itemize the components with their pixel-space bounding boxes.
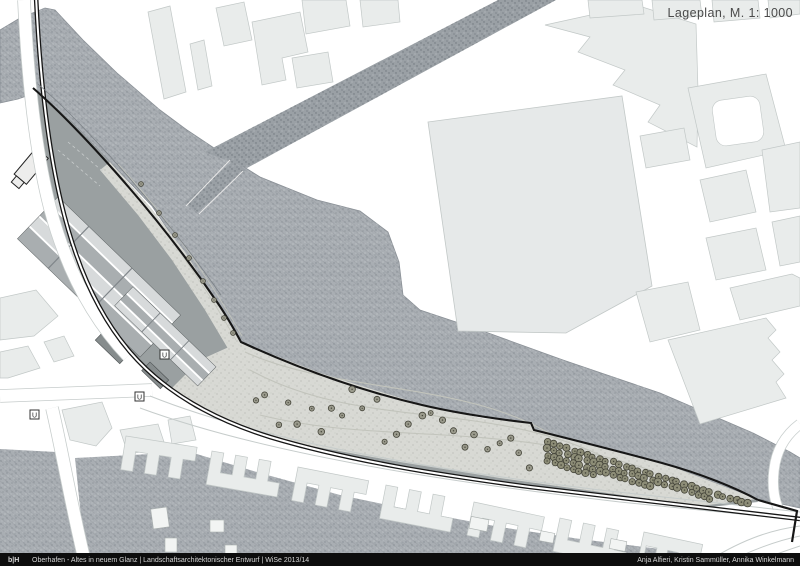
ubahn-marker: U [135, 392, 144, 401]
svg-text:U: U [162, 352, 167, 359]
footer-logo: b|H [8, 557, 19, 564]
svg-text:U: U [137, 394, 142, 401]
footer-authors: Anja Alfieri, Kristin Sammüller, Annika … [637, 557, 794, 564]
svg-text:U: U [32, 412, 37, 419]
site-plan-page: U U U Lageplan, M. 1: 1000 b|H Oberhafen… [0, 0, 800, 566]
site-plan-map: U U U Lageplan, M. 1: 1000 b|H Oberhafen… [0, 0, 800, 566]
page-title: Lageplan, M. 1: 1000 [668, 6, 793, 20]
footer-bar: b|H Oberhafen - Altes in neuem Glanz | L… [0, 553, 800, 566]
ubahn-marker: U [160, 350, 169, 359]
large-market-hall [428, 96, 652, 333]
ubahn-marker: U [30, 410, 39, 419]
footer-project: Oberhafen - Altes in neuem Glanz | Lands… [32, 557, 309, 564]
